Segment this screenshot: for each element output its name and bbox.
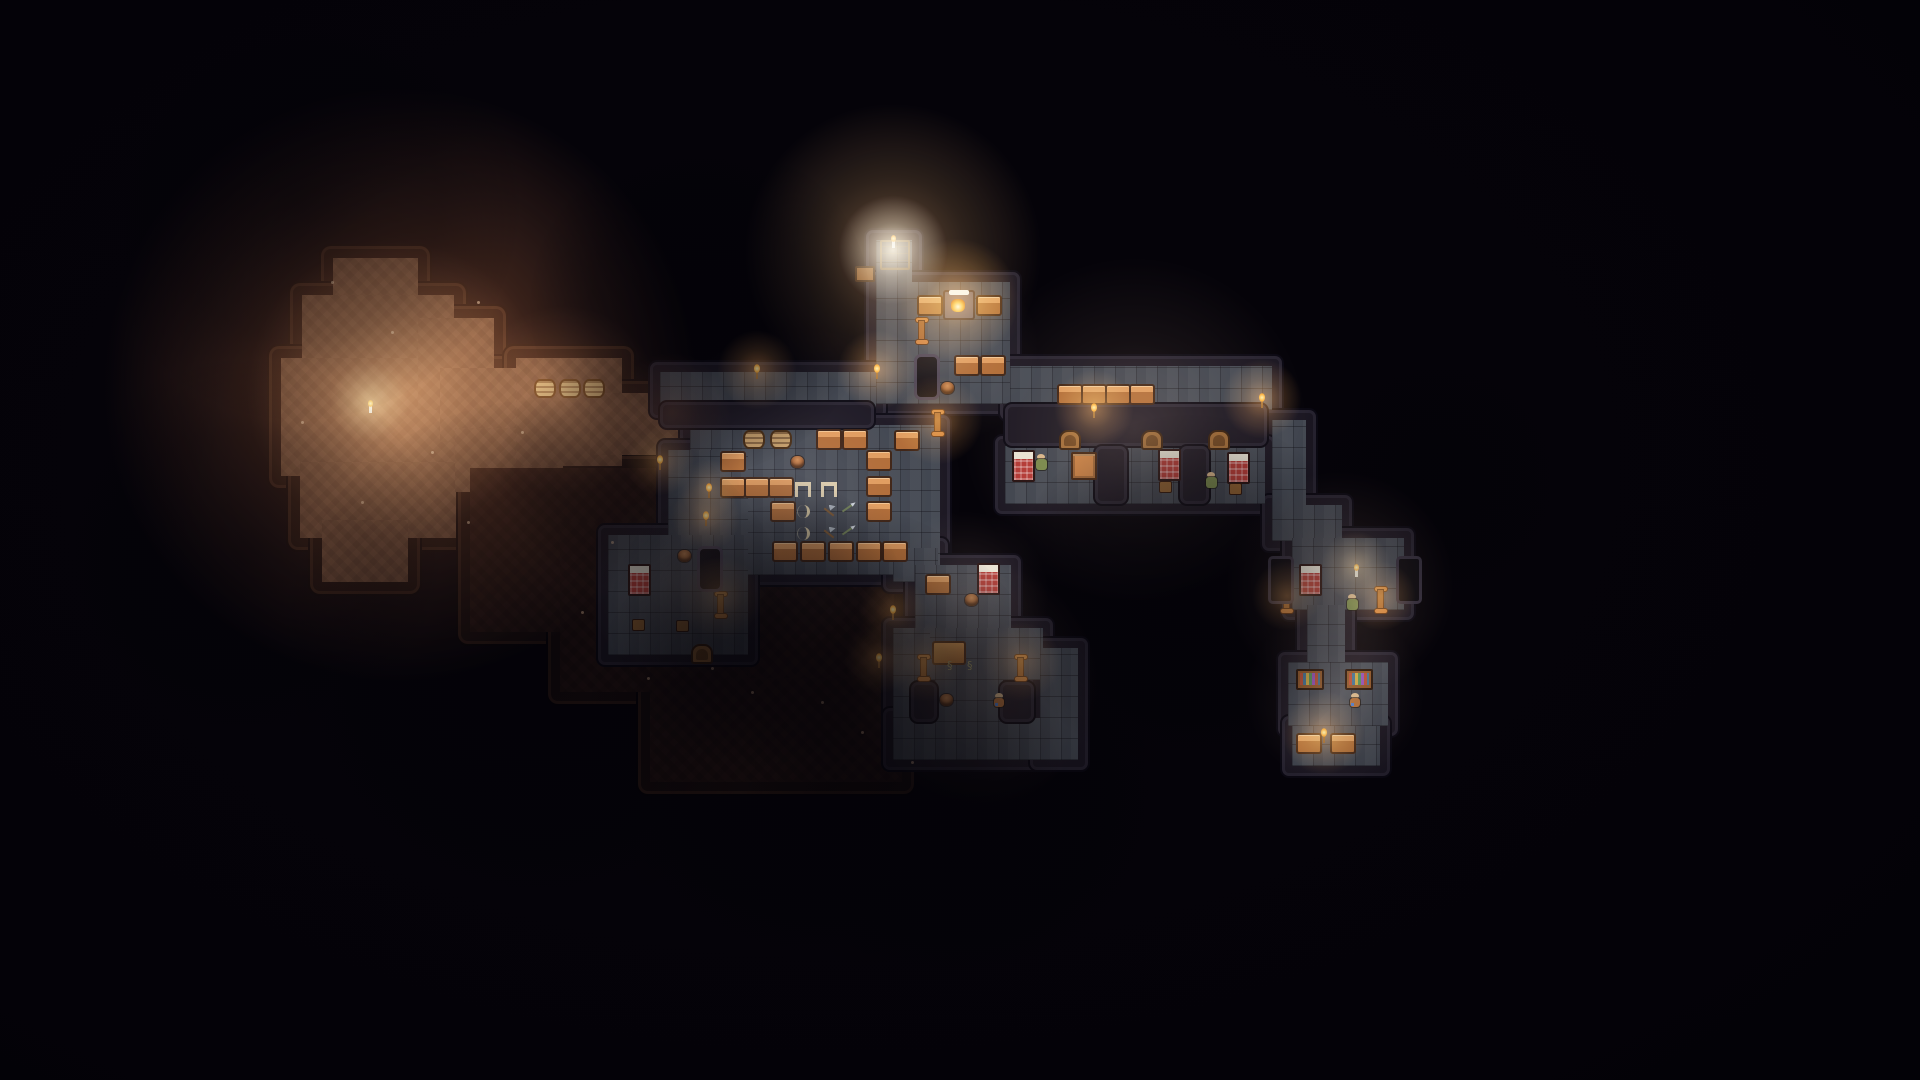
sparkle-icon [861, 731, 864, 734]
imp-creature[interactable] [940, 694, 953, 706]
chest[interactable] [1057, 384, 1083, 405]
torch-stand-shaft [919, 321, 924, 341]
wall-torch[interactable] [873, 364, 881, 380]
torch-stand-base [715, 614, 727, 618]
torch-stand[interactable] [1375, 587, 1387, 613]
wall-torch[interactable] [702, 511, 710, 527]
torch-stand-base [1015, 677, 1027, 681]
creature-body [1347, 599, 1358, 610]
chest[interactable] [1105, 384, 1131, 405]
chest[interactable] [1129, 384, 1155, 405]
chest[interactable] [856, 541, 882, 562]
torch-stand[interactable] [932, 410, 944, 436]
wall-torch[interactable] [1258, 393, 1266, 409]
torch-stand[interactable] [1015, 655, 1027, 681]
quilt [1014, 459, 1033, 480]
wall-torch[interactable] [1320, 728, 1328, 744]
dungeon-inner-wall[interactable] [660, 402, 874, 428]
torch-stick-icon [1093, 411, 1095, 418]
chest[interactable] [1081, 384, 1107, 405]
sparkle-icon [301, 421, 304, 424]
chest[interactable] [816, 429, 842, 450]
coffin[interactable] [697, 546, 723, 592]
stool[interactable] [1229, 483, 1242, 495]
chest[interactable] [866, 501, 892, 522]
barrel[interactable] [534, 379, 556, 398]
book-spines [1349, 673, 1369, 685]
torch-flame-icon [1321, 728, 1327, 737]
chest[interactable] [866, 450, 892, 471]
sparkle-icon [331, 281, 334, 284]
chest[interactable] [770, 501, 796, 522]
door[interactable] [1208, 430, 1230, 450]
sparkle-icon [911, 761, 914, 764]
torch-stick-icon [659, 463, 661, 470]
sparkle-icon [611, 541, 614, 544]
chest[interactable] [768, 477, 794, 498]
goblin-creature[interactable] [1035, 454, 1048, 470]
chest[interactable] [828, 541, 854, 562]
chain-item[interactable]: § [967, 661, 977, 671]
dungeon-floor[interactable] [1272, 505, 1342, 541]
chest[interactable] [866, 476, 892, 497]
torch-flame-icon [703, 511, 709, 520]
torch-stand-shaft [718, 595, 723, 615]
sparkle-icon [581, 611, 584, 614]
pillow [1229, 454, 1248, 461]
sparkle-icon [467, 521, 470, 524]
dark-cave-floor[interactable] [650, 660, 902, 782]
chest[interactable] [744, 477, 770, 498]
dungeon-inner-wall[interactable] [1095, 446, 1127, 504]
torch-stick-icon [878, 661, 880, 668]
pillow [1014, 452, 1033, 459]
candle-stick-icon [369, 406, 372, 413]
wall-torch[interactable] [705, 483, 713, 499]
torch-stick-icon [708, 491, 710, 498]
torch-stand[interactable] [918, 655, 930, 681]
chest[interactable] [925, 574, 951, 595]
candle-flame-icon [368, 400, 373, 407]
torch-stand-shaft [1018, 658, 1023, 678]
imp-creature[interactable] [965, 594, 978, 606]
chest[interactable] [954, 355, 980, 376]
candle-flame-icon [891, 235, 896, 242]
fire-icon [951, 299, 965, 312]
bow-item[interactable] [797, 527, 810, 540]
door[interactable] [691, 644, 713, 664]
wall-torch[interactable] [656, 455, 664, 471]
furnace-hot-top [949, 290, 969, 295]
chest[interactable] [917, 295, 943, 316]
coffin[interactable] [914, 354, 940, 400]
sparkle-icon [647, 677, 650, 680]
candle[interactable] [1353, 564, 1359, 577]
torch-stand[interactable] [916, 318, 928, 344]
torch-stand-base [1281, 609, 1293, 613]
book-spines [1300, 673, 1320, 685]
crate[interactable] [1071, 452, 1097, 480]
door-arch [1146, 435, 1158, 446]
wall-torch[interactable] [889, 605, 897, 621]
bed[interactable] [628, 564, 651, 596]
pillow [1160, 451, 1179, 458]
quilt [1301, 573, 1320, 594]
torch-stick-icon [892, 613, 894, 620]
stool[interactable] [1159, 481, 1172, 493]
furnace[interactable] [943, 290, 975, 320]
bookshelf[interactable] [1345, 669, 1373, 690]
torch-flame-icon [890, 605, 896, 614]
torch-stick-icon [1261, 401, 1263, 408]
sparkle-icon [521, 431, 524, 434]
axe-item[interactable] [823, 527, 836, 538]
bed[interactable] [1299, 564, 1322, 596]
stool[interactable] [632, 619, 645, 631]
pillow [630, 566, 649, 573]
torch-stand-shaft [1378, 590, 1383, 610]
creature-detail [1351, 703, 1354, 706]
torch-flame-icon [876, 653, 882, 662]
goblin-creature[interactable] [1205, 472, 1218, 488]
chest[interactable] [800, 541, 826, 562]
chest[interactable] [894, 430, 920, 451]
imp-creature[interactable] [678, 550, 691, 562]
dungeon-inner-wall[interactable] [1000, 682, 1034, 722]
torch-stand-shaft [935, 413, 940, 433]
door[interactable] [1141, 430, 1163, 450]
barrel[interactable] [770, 430, 792, 449]
barrel[interactable] [559, 379, 581, 398]
candle-stick-icon [1355, 570, 1358, 577]
dungeon-floor[interactable] [1307, 605, 1345, 667]
torch-stick-icon [705, 519, 707, 526]
sparkle-icon [361, 501, 364, 504]
sparkle-icon [821, 701, 824, 704]
quilt [630, 573, 649, 594]
torch-stand-shaft [921, 658, 926, 678]
imp-creature[interactable] [941, 382, 954, 394]
torch-stand-base [918, 677, 930, 681]
torch-flame-icon [657, 455, 663, 464]
torch-flame-icon [1259, 393, 1265, 402]
candle-flame-icon [1354, 564, 1359, 571]
door[interactable] [1059, 430, 1081, 450]
axe-blade [829, 505, 836, 511]
torch-stand[interactable] [715, 592, 727, 618]
creature-detail [995, 703, 998, 706]
bed[interactable] [1158, 449, 1181, 481]
chest[interactable] [882, 541, 908, 562]
dungeon-creature[interactable] [1349, 693, 1361, 707]
wall-torch[interactable] [875, 653, 883, 669]
sparkle-icon [391, 331, 394, 334]
imp-creature[interactable] [791, 456, 804, 468]
chain-item[interactable]: § [947, 661, 957, 671]
cave-floor[interactable] [322, 520, 408, 582]
trousers-item[interactable] [821, 482, 837, 497]
bow-item[interactable] [797, 505, 810, 518]
torch-flame-icon [874, 364, 880, 373]
quilt [1229, 461, 1248, 482]
axe-item[interactable] [823, 505, 836, 516]
wall-torch[interactable] [1090, 403, 1098, 419]
pillow [1301, 566, 1320, 573]
sparkle-icon [711, 667, 714, 670]
door-arch [696, 649, 708, 660]
wall-alcove[interactable] [1268, 556, 1294, 604]
torch-stick-icon [1323, 736, 1325, 743]
creature-body [1206, 477, 1217, 488]
sparkle-icon [477, 301, 480, 304]
bed[interactable] [977, 563, 1000, 595]
quilt [979, 572, 998, 593]
axe-blade [829, 527, 836, 533]
sparkle-icon [431, 451, 434, 454]
dungeon-inner-wall[interactable] [911, 682, 937, 722]
barrel[interactable] [743, 430, 765, 449]
wall-shelf[interactable] [855, 266, 875, 282]
dungeon-floor[interactable] [1040, 648, 1078, 760]
wall-torch[interactable] [753, 364, 761, 380]
bed[interactable] [1227, 452, 1250, 484]
candle[interactable] [367, 400, 373, 413]
torch-stick-icon [876, 372, 878, 379]
dungeon-creature[interactable] [993, 693, 1005, 707]
chest[interactable] [720, 451, 746, 472]
torch-stick-icon [756, 372, 758, 379]
chest[interactable] [772, 541, 798, 562]
goblin-creature[interactable] [1346, 594, 1359, 610]
chest[interactable] [980, 355, 1006, 376]
torch-stand-base [1375, 609, 1387, 613]
torch-flame-icon [706, 483, 712, 492]
chest[interactable] [842, 429, 868, 450]
chest[interactable] [976, 295, 1002, 316]
door-arch [1064, 435, 1076, 446]
pillow [979, 565, 998, 572]
barrel[interactable] [583, 379, 605, 398]
bookshelf[interactable] [1296, 669, 1324, 690]
trousers-item[interactable] [795, 482, 811, 497]
creature-body [1036, 459, 1047, 470]
chest[interactable] [720, 477, 746, 498]
torch-flame-icon [1091, 403, 1097, 412]
candle[interactable] [890, 235, 896, 248]
chest[interactable] [1296, 733, 1322, 754]
torch-stand-base [932, 432, 944, 436]
sparkle-icon [751, 691, 754, 694]
stool[interactable] [676, 620, 689, 632]
dungeon-map-viewport[interactable]: §§ [0, 0, 1920, 1080]
wall-alcove[interactable] [1396, 556, 1422, 604]
door-arch [1213, 435, 1225, 446]
torch-stand-base [916, 340, 928, 344]
quilt [1160, 458, 1179, 479]
candle-stick-icon [892, 241, 895, 248]
bed[interactable] [1012, 450, 1035, 482]
chest[interactable] [1330, 733, 1356, 754]
torch-flame-icon [754, 364, 760, 373]
